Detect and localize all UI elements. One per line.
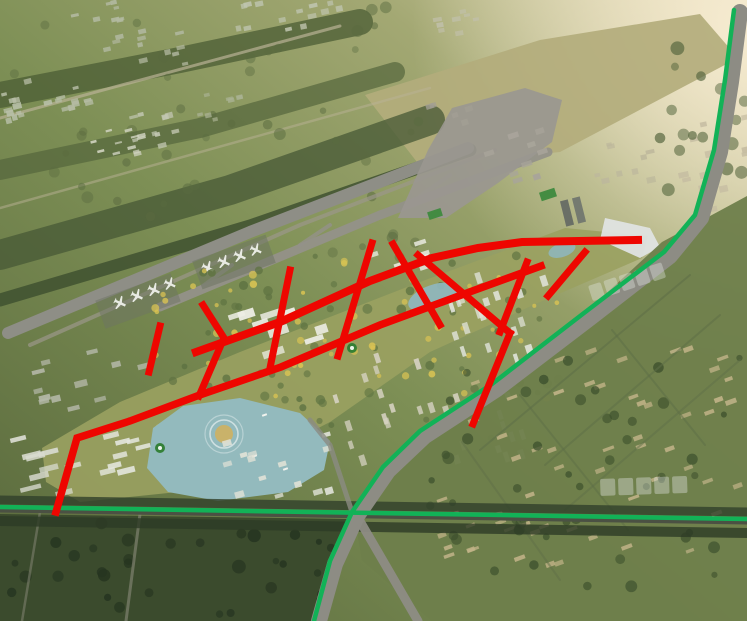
- trees-beyond-highway-item: [539, 375, 549, 385]
- tree-dots-upper-item: [359, 243, 366, 250]
- tree-dots-upper-item: [78, 183, 85, 190]
- tree-dots-upper-item: [263, 120, 273, 130]
- dev-green-trees-item: [299, 404, 306, 411]
- dev-yellow-trees-item: [285, 370, 291, 376]
- dev-green-trees-item: [277, 383, 283, 389]
- tree-dots-upper-item: [113, 197, 122, 206]
- trees-beyond-highway-item: [622, 435, 631, 444]
- tree-dots-upper-item: [176, 104, 185, 113]
- dev-green-trees-item: [239, 281, 248, 290]
- bottom-trees-item: [104, 594, 111, 601]
- tree-dots-upper-item: [10, 69, 19, 78]
- dev-yellow-trees-item: [295, 318, 301, 324]
- tree-dots-upper-item: [328, 247, 338, 257]
- dev-yellow-trees-item: [273, 394, 278, 399]
- dev-green-trees-item: [205, 330, 211, 336]
- dev-yellow-trees-item: [215, 303, 219, 307]
- trees-beyond-highway-item: [691, 472, 698, 479]
- tree-dots-upper-item: [380, 2, 392, 14]
- dev-yellow-trees-item: [202, 269, 207, 274]
- watermark-glyph: [636, 477, 652, 495]
- tree-dots-upper-item: [274, 128, 286, 140]
- trees-beyond-highway-item: [575, 394, 586, 405]
- bottom-trees-item: [7, 588, 16, 597]
- bottom-trees-item: [273, 558, 280, 565]
- dev-yellow-trees-item: [555, 300, 560, 305]
- dev-yellow-trees-item: [228, 288, 232, 292]
- tree-dots-upper-item: [332, 137, 340, 145]
- tree-dots-upper-item: [388, 229, 398, 239]
- tree-dots-upper-item: [49, 167, 60, 178]
- tree-dots-upper-item: [246, 53, 256, 63]
- trees-right-edge-item: [688, 131, 697, 140]
- dev-green-trees-item: [304, 370, 311, 377]
- trees-right-edge-item: [678, 129, 690, 141]
- dev-yellow-trees-item: [431, 357, 436, 362]
- tree-dots-upper-item: [62, 150, 69, 157]
- tree-dots-upper-item: [228, 120, 236, 128]
- trees-beyond-highway-item: [625, 580, 637, 592]
- dev-yellow-trees-item: [160, 292, 165, 297]
- bottom-trees-item: [89, 544, 97, 552]
- trees-beyond-highway-item: [513, 484, 522, 493]
- watermark-glyph: [654, 477, 670, 495]
- dev-green-trees-item: [263, 286, 273, 296]
- trees-beyond-highway-item: [591, 386, 600, 395]
- trees-right-edge-item: [696, 71, 706, 81]
- trees-right-edge-item: [697, 132, 708, 143]
- bottom-trees-item: [227, 609, 235, 617]
- dev-green-trees-item: [169, 377, 177, 385]
- bottom-trees-item: [145, 588, 154, 597]
- tree-dots-upper-item: [371, 22, 378, 29]
- dev-green-trees-item: [362, 304, 372, 314]
- tree-dots-upper-item: [408, 129, 415, 136]
- bottom-trees-item: [12, 560, 19, 567]
- dev-yellow-trees-item: [341, 260, 348, 267]
- dev-green-trees-item: [536, 316, 542, 322]
- trees-beyond-highway-item: [576, 483, 583, 490]
- trees-beyond-highway-item: [442, 451, 450, 459]
- dev-green-trees-item: [327, 305, 334, 312]
- dev-green-trees-item: [364, 388, 373, 397]
- trees-beyond-highway-item: [615, 554, 625, 564]
- dev-yellow-trees-item: [329, 352, 334, 357]
- roundabout-logo-2-dot: [158, 446, 162, 450]
- dev-yellow-trees-item: [369, 342, 376, 349]
- tree-dots-upper-item: [77, 131, 87, 141]
- bottom-trees-item: [122, 534, 135, 547]
- dev-green-trees-item: [231, 303, 238, 310]
- tree-dots-upper-item: [274, 44, 283, 53]
- dev-green-trees-item: [281, 396, 289, 404]
- tree-dots-upper-item: [352, 25, 364, 37]
- dev-green-trees-item: [208, 269, 216, 277]
- tree-dots-upper-item: [245, 66, 255, 76]
- trees-beyond-highway-item: [529, 560, 538, 569]
- dev-green-trees-item: [182, 364, 188, 370]
- trees-beyond-highway-item: [711, 572, 717, 578]
- dev-green-trees-item: [448, 259, 455, 266]
- trees-right-edge-item: [666, 105, 677, 116]
- trees-right-edge-item: [671, 63, 679, 71]
- bottom-trees-item: [165, 538, 175, 548]
- dev-green-trees-item: [512, 251, 521, 260]
- tree-dots-upper-item: [366, 4, 378, 16]
- trees-beyond-highway-item: [721, 412, 727, 418]
- dev-yellow-trees-item: [190, 283, 196, 289]
- trees-beyond-highway-item: [428, 477, 434, 483]
- trees-beyond-highway-item: [605, 455, 615, 465]
- dev-green-trees-item: [296, 396, 302, 402]
- bottom-trees-item: [52, 571, 63, 582]
- dev-green-trees-item: [220, 299, 227, 306]
- tree-dots-upper-item: [146, 212, 155, 221]
- dev-yellow-trees-item: [428, 371, 435, 378]
- dev-yellow-trees-item: [323, 339, 327, 343]
- watermark: [600, 476, 688, 496]
- trees-beyond-highway-item: [609, 410, 619, 420]
- roundabout-logo-1-dot: [350, 346, 354, 350]
- dev-green-trees-item: [516, 308, 522, 314]
- dev-yellow-trees-item: [249, 271, 257, 279]
- trees-beyond-highway-item: [583, 582, 592, 591]
- tree-dots-upper-item: [122, 158, 130, 166]
- bottom-trees-item: [236, 529, 246, 539]
- tree-dots-upper-item: [133, 19, 141, 27]
- tree-dots-upper-item: [265, 48, 272, 55]
- bottom-trees-item: [316, 539, 322, 545]
- bottom-trees-item: [290, 530, 300, 540]
- trees-beyond-highway-item: [521, 386, 532, 397]
- watermark-glyph: [672, 476, 688, 494]
- dev-green-trees-item: [423, 417, 429, 423]
- village-tr-2-item: [631, 168, 638, 175]
- dev-green-trees-item: [260, 392, 269, 401]
- bottom-trees-item: [196, 538, 205, 547]
- bottom-trees-item: [216, 610, 223, 617]
- trees-beyond-highway-item: [490, 566, 499, 575]
- tree-dots-upper-item: [164, 74, 171, 81]
- trees-beyond-highway-item: [565, 471, 572, 478]
- tree-dots-upper-item: [202, 134, 209, 141]
- bottom-trees-item: [50, 537, 61, 548]
- dev-yellow-trees-item: [490, 327, 494, 331]
- trees-right-edge-item: [662, 183, 675, 196]
- bottom-trees-item: [279, 560, 286, 567]
- tree-dots-upper-item: [189, 180, 200, 191]
- dev-yellow-trees-item: [402, 372, 409, 379]
- dev-yellow-trees-item: [518, 338, 523, 343]
- bottom-trees-item: [248, 529, 261, 542]
- trees-right-edge-item: [674, 145, 685, 156]
- dev-yellow-trees-item: [162, 298, 168, 304]
- bottom-trees-item: [114, 602, 125, 613]
- village-tr-2-item: [616, 170, 623, 177]
- watermark-glyph: [618, 478, 634, 496]
- tree-dots-upper-item: [40, 20, 49, 29]
- tree-dots-upper-item: [160, 200, 167, 207]
- trees-right-edge-item: [655, 133, 666, 144]
- dev-yellow-trees-item: [250, 281, 257, 288]
- bottom-trees-item: [265, 582, 276, 593]
- watermark-glyph: [600, 478, 616, 496]
- dev-green-trees-item: [316, 395, 326, 405]
- aerial-masterplan-rendering: [0, 0, 747, 621]
- trees-right-edge-item: [670, 41, 684, 55]
- trees-beyond-highway-item: [563, 356, 573, 366]
- trees-beyond-highway-item: [687, 454, 698, 465]
- tree-dots-upper-item: [414, 117, 423, 126]
- dev-green-trees-item: [331, 281, 338, 288]
- tree-dots-upper-item: [81, 191, 93, 203]
- trees-beyond-highway-item: [446, 396, 455, 405]
- trees-beyond-highway-item: [463, 369, 471, 377]
- dev-yellow-trees-item: [377, 374, 381, 378]
- tree-dots-upper-item: [320, 107, 326, 113]
- bottom-trees-item: [314, 569, 321, 576]
- trees-beyond-highway-item: [708, 541, 720, 553]
- tree-dots-upper-item: [361, 156, 371, 166]
- dev-yellow-trees-item: [425, 336, 431, 342]
- dev-yellow-trees-item: [297, 337, 304, 344]
- dev-green-trees-item: [328, 422, 334, 428]
- dev-green-trees-item: [316, 418, 322, 424]
- rendering-canvas: [0, 0, 747, 621]
- dev-yellow-trees-item: [247, 318, 251, 322]
- dev-yellow-trees-item: [532, 304, 536, 308]
- bottom-trees-item: [68, 550, 79, 561]
- trees-beyond-highway-item: [628, 417, 637, 426]
- dev-yellow-trees-item: [298, 363, 303, 368]
- tree-dots-upper-item: [352, 46, 359, 53]
- dev-yellow-trees-item: [301, 291, 305, 295]
- trees-beyond-highway-item: [533, 441, 542, 450]
- tree-dots-upper-item: [161, 150, 171, 160]
- dev-yellow-trees-item: [155, 310, 160, 315]
- dev-yellow-trees-item: [461, 390, 468, 397]
- bottom-trees-item: [232, 560, 246, 574]
- dev-yellow-trees-item: [466, 353, 472, 359]
- bottom-trees-item: [98, 569, 110, 581]
- dev-yellow-trees-item: [402, 299, 408, 305]
- dev-green-trees-item: [313, 254, 318, 259]
- dev-green-trees-item: [406, 287, 415, 296]
- dev-green-trees-item: [300, 322, 308, 330]
